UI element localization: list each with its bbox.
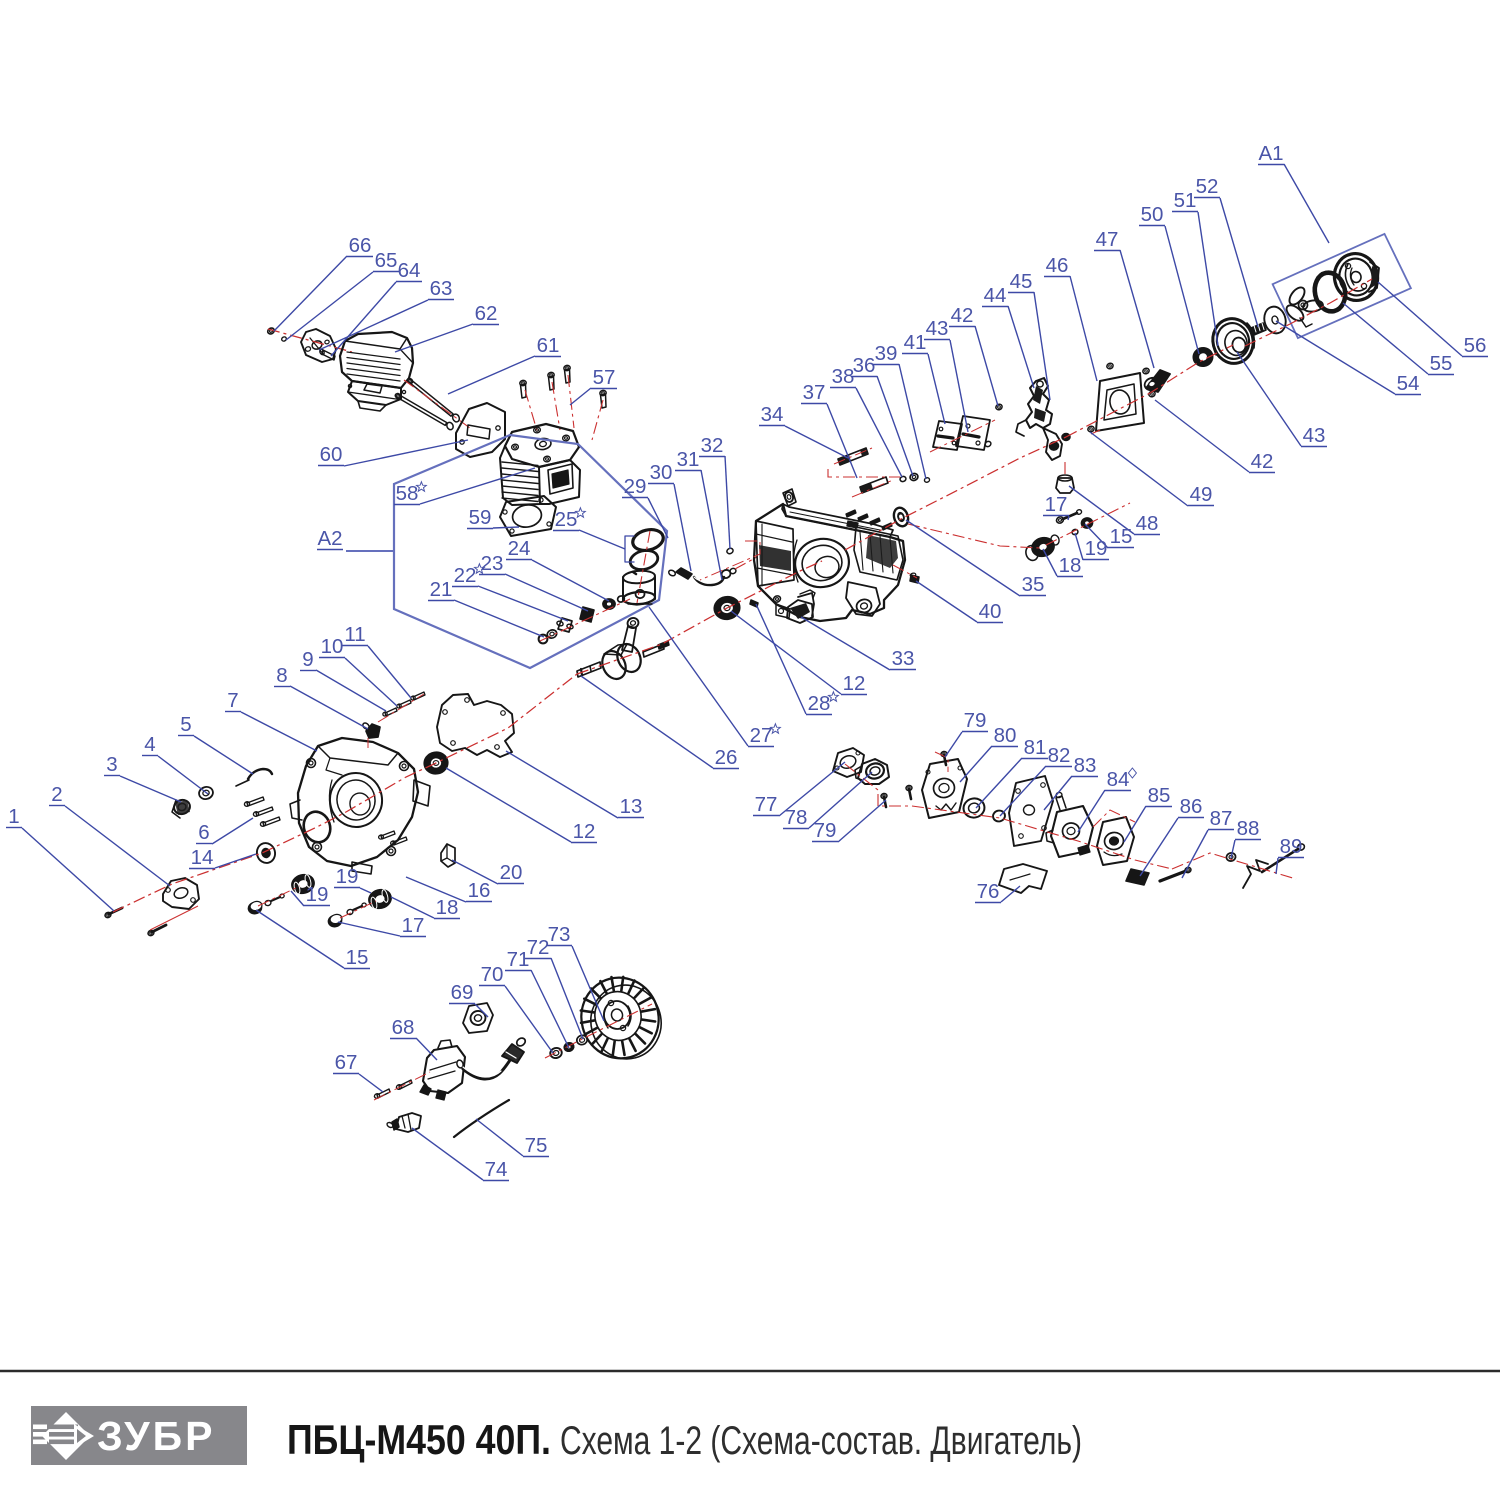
svg-text:58: 58	[396, 482, 419, 505]
svg-text:A2: A2	[317, 527, 342, 550]
svg-text:1: 1	[8, 805, 19, 828]
svg-text:68: 68	[392, 1016, 415, 1039]
svg-text:19: 19	[336, 865, 359, 888]
svg-text:2: 2	[51, 783, 62, 806]
svg-text:15: 15	[346, 946, 369, 969]
svg-text:28: 28	[808, 692, 831, 715]
svg-text:30: 30	[650, 461, 673, 484]
svg-text:27: 27	[750, 724, 773, 747]
svg-text:65: 65	[375, 249, 398, 272]
svg-text:12: 12	[843, 672, 866, 695]
svg-text:64: 64	[398, 259, 421, 282]
svg-text:A1: A1	[1258, 142, 1283, 165]
svg-text:76: 76	[977, 880, 1000, 903]
svg-text:18: 18	[436, 896, 459, 919]
svg-text:36: 36	[853, 354, 876, 377]
svg-text:46: 46	[1046, 254, 1069, 277]
svg-text:19: 19	[1085, 537, 1108, 560]
svg-text:42: 42	[1251, 450, 1274, 473]
svg-text:77: 77	[755, 793, 778, 816]
svg-text:87: 87	[1210, 807, 1233, 830]
svg-text:79: 79	[814, 819, 837, 842]
svg-text:48: 48	[1136, 512, 1159, 535]
svg-text:ПБЦ-М450 40П.: ПБЦ-М450 40П.	[287, 1416, 551, 1463]
svg-text:6: 6	[198, 821, 209, 844]
svg-text:25: 25	[555, 508, 578, 531]
svg-text:83: 83	[1074, 754, 1097, 777]
svg-text:82: 82	[1048, 744, 1071, 767]
svg-text:16: 16	[468, 879, 491, 902]
svg-text:10: 10	[321, 635, 344, 658]
svg-text:3: 3	[106, 753, 117, 776]
svg-text:20: 20	[500, 861, 523, 884]
svg-text:11: 11	[344, 623, 365, 646]
svg-text:34: 34	[761, 403, 784, 426]
svg-text:55: 55	[1430, 352, 1453, 375]
svg-text:23: 23	[481, 552, 504, 575]
svg-text:71: 71	[507, 948, 530, 971]
svg-text:50: 50	[1141, 203, 1164, 226]
svg-text:17: 17	[1045, 493, 1068, 516]
svg-text:66: 66	[349, 234, 372, 257]
svg-text:37: 37	[803, 381, 826, 404]
svg-text:39: 39	[875, 342, 898, 365]
svg-text:43: 43	[1303, 424, 1326, 447]
svg-text:84: 84	[1107, 768, 1130, 791]
svg-text:13: 13	[620, 795, 643, 818]
svg-text:17: 17	[402, 914, 425, 937]
svg-text:Схема 1-2 (Схема-состав. Двига: Схема 1-2 (Схема-состав. Двигатель)	[560, 1419, 1082, 1463]
svg-text:56: 56	[1464, 334, 1487, 357]
svg-text:9: 9	[302, 648, 313, 671]
svg-text:45: 45	[1010, 270, 1033, 293]
svg-text:79: 79	[964, 709, 987, 732]
svg-text:33: 33	[892, 647, 915, 670]
svg-text:43: 43	[926, 317, 949, 340]
svg-text:5: 5	[180, 713, 191, 736]
svg-text:8: 8	[276, 664, 287, 687]
svg-text:ЗУБР: ЗУБР	[97, 1413, 215, 1459]
svg-text:35: 35	[1022, 573, 1045, 596]
svg-text:15: 15	[1110, 525, 1133, 548]
svg-text:78: 78	[785, 806, 808, 829]
svg-text:57: 57	[593, 366, 616, 389]
svg-text:42: 42	[951, 304, 974, 327]
svg-text:59: 59	[469, 506, 492, 529]
svg-text:29: 29	[624, 475, 647, 498]
svg-text:52: 52	[1196, 175, 1219, 198]
svg-text:40: 40	[979, 600, 1002, 623]
svg-text:44: 44	[984, 284, 1007, 307]
svg-text:4: 4	[144, 733, 155, 756]
svg-text:14: 14	[191, 846, 214, 869]
svg-text:12: 12	[573, 820, 596, 843]
svg-text:89: 89	[1280, 835, 1303, 858]
svg-text:88: 88	[1237, 817, 1260, 840]
svg-text:47: 47	[1096, 228, 1119, 251]
svg-text:75: 75	[525, 1134, 548, 1157]
svg-text:22: 22	[454, 564, 477, 587]
svg-text:21: 21	[430, 578, 453, 601]
svg-text:26: 26	[715, 746, 738, 769]
svg-text:7: 7	[227, 689, 238, 712]
svg-text:38: 38	[832, 365, 855, 388]
svg-text:85: 85	[1148, 784, 1171, 807]
svg-text:32: 32	[701, 434, 724, 457]
svg-text:31: 31	[677, 448, 700, 471]
svg-text:51: 51	[1174, 189, 1197, 212]
svg-text:80: 80	[994, 724, 1017, 747]
svg-text:70: 70	[481, 963, 504, 986]
svg-text:72: 72	[527, 936, 550, 959]
svg-text:49: 49	[1190, 483, 1213, 506]
svg-text:62: 62	[475, 302, 498, 325]
svg-text:69: 69	[451, 981, 474, 1004]
svg-text:86: 86	[1180, 795, 1203, 818]
svg-text:61: 61	[537, 334, 560, 357]
svg-text:63: 63	[430, 277, 453, 300]
svg-text:73: 73	[548, 923, 571, 946]
svg-text:67: 67	[335, 1051, 358, 1074]
svg-text:19: 19	[306, 883, 329, 906]
svg-text:41: 41	[904, 331, 927, 354]
svg-text:74: 74	[485, 1158, 508, 1181]
svg-text:81: 81	[1024, 736, 1047, 759]
svg-text:24: 24	[508, 537, 531, 560]
svg-text:60: 60	[320, 443, 343, 466]
svg-text:54: 54	[1397, 372, 1420, 395]
svg-text:18: 18	[1059, 554, 1082, 577]
